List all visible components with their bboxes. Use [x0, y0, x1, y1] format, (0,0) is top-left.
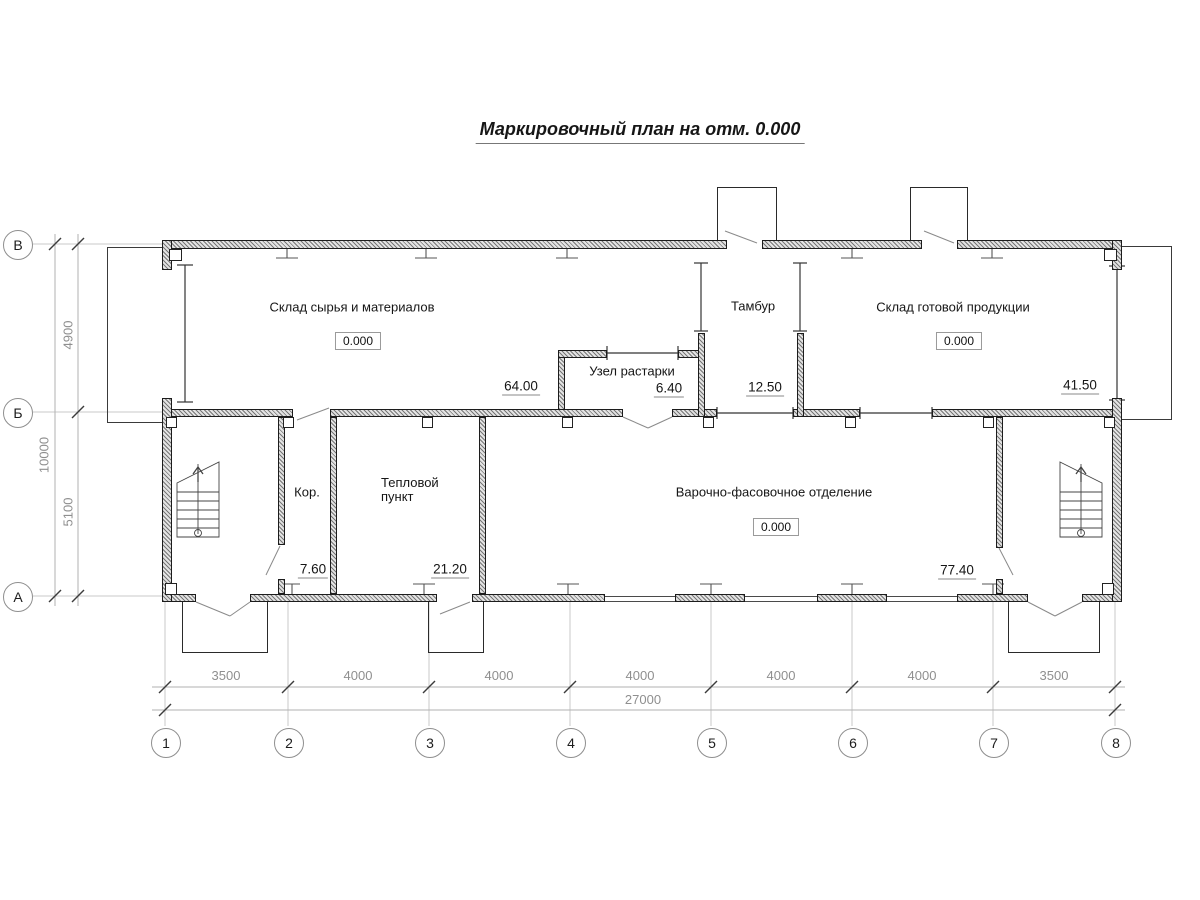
wall-segment [957, 594, 1028, 602]
pilaster [703, 417, 714, 428]
axis-bubble-col-4: 4 [556, 728, 586, 758]
dim-span: 4000 [908, 668, 937, 683]
axis-bubble-col-5: 5 [697, 728, 727, 758]
axis-bubble-col-7: 7 [979, 728, 1009, 758]
floor-plan-drawing: Маркировочный план на отм. 0.000 [0, 0, 1200, 900]
dim-span: 4000 [485, 668, 514, 683]
pilaster [283, 417, 294, 428]
room-label-raw-materials-storage: Склад сырья и материалов [269, 300, 434, 315]
wall-segment [996, 417, 1003, 548]
pilaster [845, 417, 856, 428]
wall-segment [278, 579, 285, 594]
room-mark: 7.60 [298, 562, 328, 579]
pilaster [1102, 583, 1114, 595]
staircase-left [177, 462, 219, 537]
wall-segment [672, 409, 717, 417]
wall-segment [479, 417, 486, 594]
wall-segment [996, 579, 1003, 594]
pilaster [169, 249, 182, 261]
axis-bubble-row-a: А [3, 582, 33, 612]
wall-segment [558, 350, 607, 358]
loading-platform-right [1122, 246, 1172, 420]
room-mark: 21.20 [431, 562, 469, 579]
axis-bubble-col-2: 2 [274, 728, 304, 758]
wall-segment [558, 350, 565, 410]
wall-segment [797, 333, 804, 417]
axis-extension-lines [33, 244, 1115, 726]
dim-span: 5100 [61, 498, 76, 527]
wall-segment [472, 594, 605, 602]
wall-segment [817, 594, 887, 602]
dim-total-left: 10000 [37, 437, 52, 473]
pilaster [165, 583, 177, 595]
elevation-mark: 0.000 [936, 332, 982, 350]
axis-bubble-col-1: 1 [151, 728, 181, 758]
room-mark: 41.50 [1061, 378, 1099, 395]
wall-segment [162, 398, 172, 602]
room-label-unpacking-unit: Узел растарки [589, 364, 675, 379]
room-label-line: пункт [381, 490, 439, 504]
vestibule-partition-lines [694, 263, 807, 331]
window-strip [745, 596, 817, 602]
room-label-line: Тепловой [381, 476, 439, 490]
wall-segment [250, 594, 437, 602]
dim-span: 3500 [212, 668, 241, 683]
entrance-porch-bottom-1 [182, 602, 268, 653]
room-label-vestibule: Тамбур [731, 299, 775, 314]
elevation-mark: 0.000 [335, 332, 381, 350]
axis-bubble-col-3: 3 [415, 728, 445, 758]
wall-segment [957, 240, 1122, 249]
dim-span: 4000 [344, 668, 373, 683]
room-label-corridor: Кор. [294, 485, 320, 500]
room-mark: 12.50 [746, 380, 784, 397]
dim-span: 3500 [1040, 668, 1069, 683]
pilaster [1104, 249, 1117, 261]
dim-span: 4900 [61, 321, 76, 350]
door-swing-lines [196, 231, 1082, 616]
room-label-finished-goods-storage: Склад готовой продукции [876, 300, 1030, 315]
pilaster [422, 417, 433, 428]
wall-segment [698, 333, 705, 417]
wall-segment [330, 409, 623, 417]
wall-segment [932, 409, 1122, 417]
room-label-cooking-packing: Варочно-фасовочное отделение [676, 485, 872, 500]
dock-opening-lines [177, 265, 1125, 402]
wall-segment [1112, 398, 1122, 602]
pilaster [983, 417, 994, 428]
axis-bubble-col-8: 8 [1101, 728, 1131, 758]
wall-segment [162, 409, 293, 417]
entrance-porch-top-1 [717, 187, 777, 240]
wall-segment [678, 350, 700, 358]
entrance-porch-top-2 [910, 187, 968, 240]
room-mark: 77.40 [938, 563, 976, 580]
wall-segment [762, 240, 922, 249]
dim-span: 4000 [767, 668, 796, 683]
dim-total-bottom: 27000 [625, 692, 661, 707]
loading-platform-left [107, 247, 162, 423]
entrance-porch-bottom-2 [428, 602, 484, 653]
entrance-porch-bottom-3 [1008, 602, 1100, 653]
wall-segment [162, 240, 727, 249]
axis-bubble-row-b: Б [3, 398, 33, 428]
axis-bubble-col-6: 6 [838, 728, 868, 758]
window-strip [887, 596, 957, 602]
wall-segment [675, 594, 745, 602]
staircase-right [1060, 462, 1102, 537]
pilaster [1104, 417, 1115, 428]
pilaster [562, 417, 573, 428]
wall-segment [330, 417, 337, 594]
room-mark: 64.00 [502, 379, 540, 396]
room-mark: 6.40 [654, 381, 684, 398]
dim-span: 4000 [626, 668, 655, 683]
plan-linework [0, 0, 1200, 900]
window-strip [605, 596, 675, 602]
room-label-heating-station: Тепловой пункт [381, 476, 439, 504]
pilaster [166, 417, 177, 428]
axis-bubble-row-v: В [3, 230, 33, 260]
elevation-mark: 0.000 [753, 518, 799, 536]
wall-segment [278, 417, 285, 545]
